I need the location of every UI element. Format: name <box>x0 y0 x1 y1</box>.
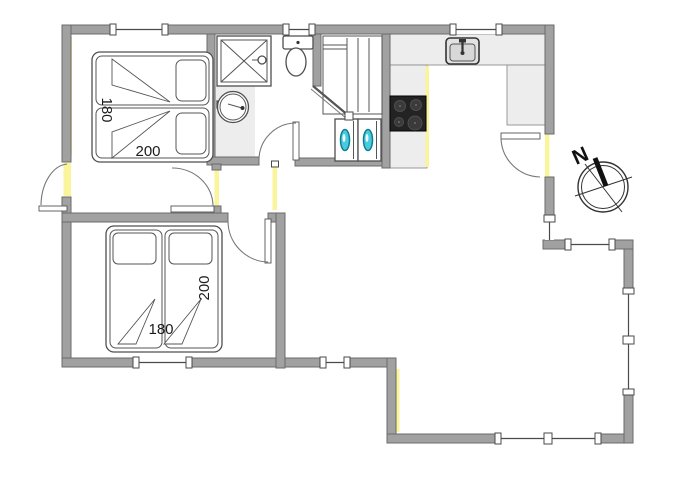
window <box>450 24 502 35</box>
washbasin-icon <box>217 92 249 123</box>
bed2-length-label: 200 <box>196 275 213 300</box>
window <box>110 24 168 35</box>
window <box>565 239 615 250</box>
shower-icon <box>217 36 271 86</box>
toilet-icon <box>283 36 313 76</box>
double-bed: 200 180 <box>106 226 222 352</box>
stove-icon <box>390 96 426 131</box>
bedroom2-door <box>228 219 271 263</box>
floor-plan: 180 200 200 180 <box>0 0 699 479</box>
window <box>133 357 192 368</box>
window <box>283 24 315 35</box>
north-label: N <box>569 142 592 169</box>
bed2-width-label: 180 <box>148 321 173 338</box>
double-bed: 180 200 <box>92 52 213 162</box>
kitchen-sink-icon <box>446 38 479 64</box>
window <box>320 357 350 368</box>
washing-machine-icon <box>335 119 358 161</box>
hall-door <box>171 168 214 212</box>
bed1-width-label: 180 <box>98 97 115 122</box>
bed1-length-label: 200 <box>135 143 160 160</box>
window <box>544 215 555 240</box>
compass-rose: N <box>569 142 632 212</box>
washing-machine-icon <box>358 119 381 161</box>
kitchen-terrace-door <box>501 133 540 177</box>
window <box>623 288 634 395</box>
kitchen-counter-right <box>507 65 545 125</box>
window <box>495 433 601 444</box>
bathroom-door <box>259 122 299 160</box>
